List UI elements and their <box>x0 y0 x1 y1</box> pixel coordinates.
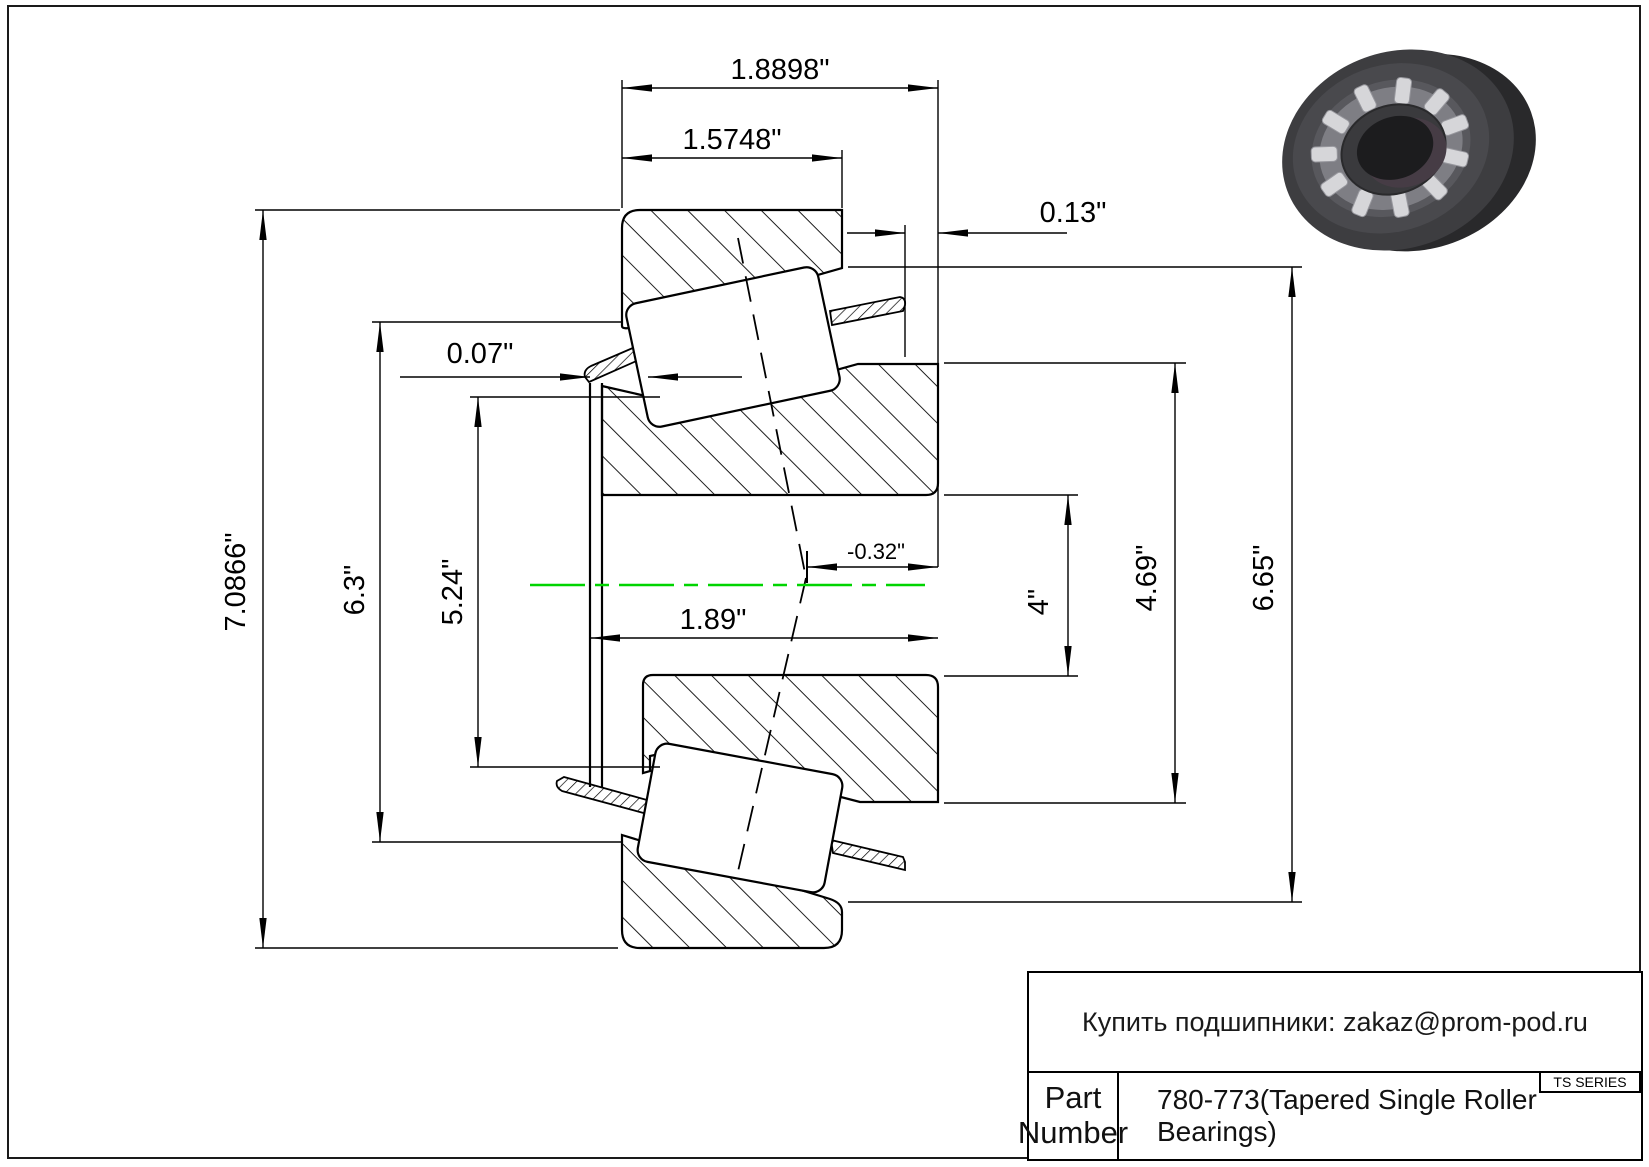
dim-bore-diameter-label: 4" <box>1023 589 1055 615</box>
dim-cup-width-label: 1.5748" <box>683 124 782 156</box>
dim-front-offset-label: 0.07" <box>447 338 514 370</box>
series-label: TS SERIES <box>1553 1074 1626 1090</box>
dim-outer-width-label: 1.8898" <box>731 54 830 86</box>
part-number-label-line2: Number <box>1018 1116 1128 1151</box>
title-block-bottom-row: Part Number 780-773(Tapered Single Rolle… <box>1029 1073 1641 1159</box>
cage-top-right <box>830 297 905 325</box>
drawing-sheet: 1.8898" 1.5748" 0.13" 0.07" 1.89" -0.32"… <box>0 0 1649 1167</box>
part-value-text: 780-773(Tapered Single Roller Bearings) <box>1157 1084 1641 1148</box>
dim-cup-front-diameter-label: 6.65" <box>1248 545 1280 612</box>
dim-cone-width-label: 1.89" <box>680 604 747 636</box>
dim-outer-diameter-label: 7.0866" <box>220 533 252 632</box>
contact-cell: Купить подшипники: zakaz@prom-pod.ru <box>1029 973 1641 1073</box>
dim-cone-back-diameter-label: 4.69" <box>1131 545 1163 612</box>
cage-bottom-right <box>831 840 905 870</box>
contact-text: Купить подшипники: zakaz@prom-pod.ru <box>1082 1007 1588 1038</box>
dim-effective-center-label: -0.32" <box>847 539 905 564</box>
part-number-cell: Part Number <box>1029 1073 1119 1159</box>
series-box: TS SERIES <box>1539 1071 1641 1093</box>
dim-back-offset-label: 0.13" <box>1040 197 1107 229</box>
dim-rib-diameter-label: 5.24" <box>437 559 469 626</box>
bearing-3d-image <box>1254 11 1564 290</box>
title-block: Купить подшипники: zakaz@prom-pod.ru Par… <box>1027 971 1643 1161</box>
bearing-cross-section <box>557 210 938 948</box>
dim-flange-diameter-label: 6.3" <box>339 565 371 616</box>
part-number-label-line1: Part <box>1045 1081 1102 1116</box>
